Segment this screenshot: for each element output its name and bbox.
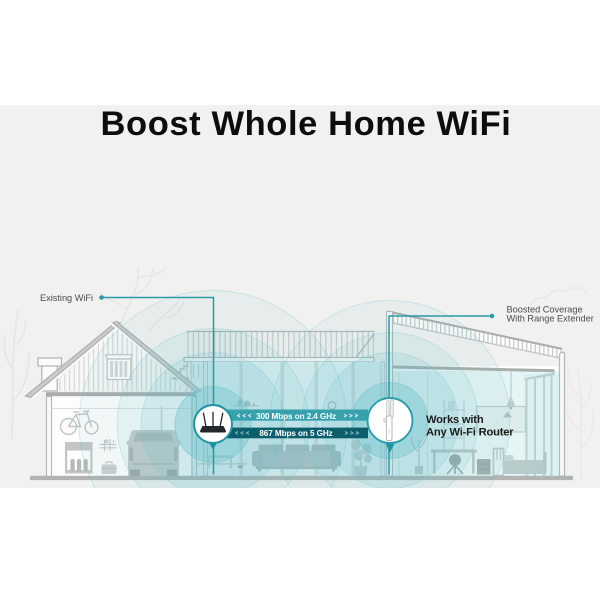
- svg-text:300 Mbps on 2.4 GHz: 300 Mbps on 2.4 GHz: [256, 412, 336, 421]
- svg-text:867 Mbps on 5 GHz: 867 Mbps on 5 GHz: [259, 429, 332, 438]
- svg-text:Existing WiFi: Existing WiFi: [40, 293, 93, 303]
- svg-text:Boost Whole Home WiFi: Boost Whole Home WiFi: [101, 105, 512, 143]
- svg-text:Works with: Works with: [426, 414, 484, 426]
- svg-text:Any Wi-Fi Router: Any Wi-Fi Router: [426, 427, 514, 439]
- svg-text:With Range Extender: With Range Extender: [507, 314, 594, 324]
